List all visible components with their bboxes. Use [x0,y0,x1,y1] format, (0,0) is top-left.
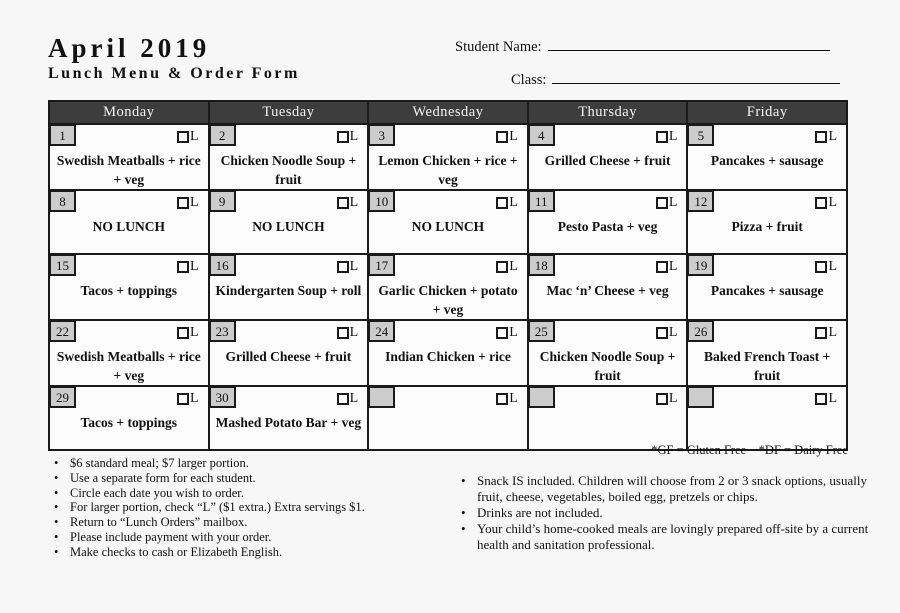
portion-checkbox[interactable] [496,261,508,273]
day-header-monday: Monday [49,101,209,124]
portion-check-row: L [496,259,518,275]
menu-text: NO LUNCH [50,217,208,236]
calendar-week-row: 15LTacos + toppings16LKindergarten Soup … [49,254,847,320]
calendar-cell: 16LKindergarten Soup + roll [209,254,369,320]
calendar-cell: 24LIndian Chicken + rice [368,320,528,386]
portion-checkbox-label: L [509,195,518,211]
portion-checkbox[interactable] [815,393,827,405]
portion-check-row: L [815,195,837,211]
menu-text: Garlic Chicken + potato + veg [369,281,527,319]
info-note-text: Drinks are not included. [477,505,875,521]
menu-text: Indian Chicken + rice [369,347,527,366]
portion-check-row: L [815,325,837,341]
calendar-cell: 30LMashed Potato Bar + veg [209,386,369,450]
calendar-body: 1LSwedish Meatballs + rice + veg2LChicke… [49,124,847,450]
calendar-cell: 22LSwedish Meatballs + rice + veg [49,320,209,386]
menu-text: Grilled Cheese + fruit [529,151,687,170]
calendar-cell: 15LTacos + toppings [49,254,209,320]
portion-checkbox[interactable] [337,197,349,209]
order-note-text: Make checks to cash or Elizabeth English… [70,545,448,560]
day-header-thursday: Thursday [528,101,688,124]
date-box[interactable] [368,386,395,408]
page-subtitle: Lunch Menu & Order Form [48,65,300,83]
portion-checkbox-label: L [350,391,359,407]
portion-checkbox-label: L [190,391,199,407]
class-input[interactable] [552,70,840,84]
calendar-cell: 12LPizza + fruit [687,190,847,254]
student-name-field: Student Name: [455,37,830,56]
menu-text: Pancakes + sausage [688,281,846,300]
order-note: •Please include payment with your order. [48,530,448,545]
portion-checkbox[interactable] [815,261,827,273]
portion-checkbox-label: L [190,259,199,275]
order-note-text: $6 standard meal; $7 larger portion. [70,456,448,471]
portion-checkbox-label: L [509,391,518,407]
menu-text: Kindergarten Soup + roll [210,281,368,300]
info-note-text: Your child’s home-cooked meals are lovin… [477,521,875,553]
bullet-icon: • [455,521,477,553]
calendar-cell: 3LLemon Chicken + rice + veg [368,124,528,190]
order-note-text: Return to “Lunch Orders” mailbox. [70,515,448,530]
student-name-label: Student Name: [455,39,542,55]
calendar-cell: 9LNO LUNCH [209,190,369,254]
portion-check-row: L [656,129,678,145]
portion-check-row: L [656,195,678,211]
menu-text: Baked French Toast + fruit [688,347,846,385]
order-note-text: Circle each date you wish to order. [70,486,448,501]
portion-check-row: L [337,259,359,275]
info-note-text: Snack IS included. Children will choose … [477,473,875,505]
calendar-cell: 26LBaked French Toast + fruit [687,320,847,386]
date-box[interactable]: 1 [49,124,76,146]
portion-check-row: L [496,325,518,341]
calendar-cell: 10LNO LUNCH [368,190,528,254]
bullet-icon: • [48,500,70,515]
portion-checkbox[interactable] [177,327,189,339]
portion-check-row: L [337,195,359,211]
portion-checkbox-label: L [669,259,678,275]
portion-checkbox-label: L [509,325,518,341]
menu-text: Tacos + toppings [50,281,208,300]
bullet-icon: • [48,471,70,486]
calendar-cell: 11LPesto Pasta + veg [528,190,688,254]
portion-check-row: L [177,391,199,407]
info-note: •Your child’s home-cooked meals are lovi… [455,521,875,553]
calendar-week-row: 29LTacos + toppings30LMashed Potato Bar … [49,386,847,450]
portion-check-row: L [177,129,199,145]
portion-check-row: L [815,259,837,275]
date-box[interactable]: 23 [209,320,236,342]
portion-check-row: L [337,391,359,407]
portion-check-row: L [177,259,199,275]
calendar-cell: L [528,386,688,450]
bullet-icon: • [48,515,70,530]
calendar-cell: 19LPancakes + sausage [687,254,847,320]
order-note: •$6 standard meal; $7 larger portion. [48,456,448,471]
order-note: •Return to “Lunch Orders” mailbox. [48,515,448,530]
date-box[interactable]: 5 [687,124,714,146]
calendar-head-row: MondayTuesdayWednesdayThursdayFriday [49,101,847,124]
gf-df-footnote: *GF = Gluten Free *DF = Dairy Free [651,443,848,458]
calendar-cell: 5LPancakes + sausage [687,124,847,190]
calendar-week-row: 22LSwedish Meatballs + rice + veg23LGril… [49,320,847,386]
date-box[interactable]: 8 [49,190,76,212]
bullet-icon: • [455,473,477,505]
portion-checkbox[interactable] [815,197,827,209]
portion-checkbox-label: L [190,325,199,341]
class-field: Class: [511,70,840,89]
date-box[interactable]: 22 [49,320,76,342]
portion-checkbox-label: L [350,129,359,145]
menu-text: Grilled Cheese + fruit [210,347,368,366]
menu-calendar-table: MondayTuesdayWednesdayThursdayFriday 1LS… [48,100,848,451]
day-header-friday: Friday [687,101,847,124]
date-box[interactable]: 17 [368,254,395,276]
portion-checkbox-label: L [190,129,199,145]
order-note: •Use a separate form for each student. [48,471,448,486]
order-note: •For larger portion, check “L” ($1 extra… [48,500,448,515]
bullet-icon: • [48,530,70,545]
calendar-cell: 17LGarlic Chicken + potato + veg [368,254,528,320]
bullet-icon: • [455,505,477,521]
date-box[interactable]: 19 [687,254,714,276]
menu-text: Swedish Meatballs + rice + veg [50,151,208,189]
portion-checkbox[interactable] [656,197,668,209]
menu-text: Pancakes + sausage [688,151,846,170]
portion-checkbox[interactable] [337,327,349,339]
portion-checkbox[interactable] [496,393,508,405]
portion-checkbox-label: L [669,195,678,211]
calendar-cell: L [368,386,528,450]
portion-checkbox[interactable] [815,327,827,339]
portion-check-row: L [656,325,678,341]
portion-checkbox[interactable] [496,197,508,209]
portion-checkbox[interactable] [656,261,668,273]
portion-checkbox-label: L [828,195,837,211]
portion-check-row: L [496,195,518,211]
portion-check-row: L [496,391,518,407]
portion-checkbox-label: L [828,391,837,407]
info-note: •Snack IS included. Children will choose… [455,473,875,505]
portion-checkbox-label: L [509,129,518,145]
date-box[interactable]: 29 [49,386,76,408]
portion-checkbox-label: L [190,195,199,211]
menu-text: Chicken Noodle Soup + fruit [210,151,368,189]
calendar-week-row: 8LNO LUNCH9LNO LUNCH10LNO LUNCH11LPesto … [49,190,847,254]
day-header-tuesday: Tuesday [209,101,369,124]
portion-checkbox-label: L [350,259,359,275]
order-note-text: Use a separate form for each student. [70,471,448,486]
bullet-icon: • [48,456,70,471]
order-note: •Make checks to cash or Elizabeth Englis… [48,545,448,560]
portion-checkbox[interactable] [496,131,508,143]
day-header-wednesday: Wednesday [368,101,528,124]
info-notes-list: •Snack IS included. Children will choose… [455,473,875,553]
date-box[interactable]: 26 [687,320,714,342]
ordering-notes-list: •$6 standard meal; $7 larger portion.•Us… [48,456,448,560]
menu-text: Chicken Noodle Soup + fruit [529,347,687,385]
portion-checkbox-label: L [828,129,837,145]
portion-check-row: L [337,129,359,145]
calendar-cell: 2LChicken Noodle Soup + fruit [209,124,369,190]
portion-checkbox-label: L [669,325,678,341]
menu-text: Mac ‘n’ Cheese + veg [529,281,687,300]
portion-checkbox[interactable] [177,131,189,143]
portion-check-row: L [815,129,837,145]
portion-check-row: L [177,195,199,211]
bullet-icon: • [48,486,70,501]
portion-checkbox-label: L [669,129,678,145]
date-box[interactable]: 12 [687,190,714,212]
order-note: •Circle each date you wish to order. [48,486,448,501]
portion-checkbox-label: L [828,325,837,341]
portion-checkbox-label: L [350,195,359,211]
calendar-cell: L [687,386,847,450]
date-box[interactable]: 10 [368,190,395,212]
menu-text: Swedish Meatballs + rice + veg [50,347,208,385]
portion-check-row: L [496,129,518,145]
calendar-cell: 8LNO LUNCH [49,190,209,254]
portion-checkbox[interactable] [656,393,668,405]
calendar-cell: 23LGrilled Cheese + fruit [209,320,369,386]
portion-check-row: L [177,325,199,341]
order-note-text: For larger portion, check “L” ($1 extra.… [70,500,448,515]
portion-checkbox[interactable] [177,197,189,209]
date-box[interactable]: 18 [528,254,555,276]
class-label: Class: [511,72,546,88]
portion-check-row: L [815,391,837,407]
bullet-icon: • [48,545,70,560]
menu-text: Pesto Pasta + veg [529,217,687,236]
menu-text: NO LUNCH [369,217,527,236]
portion-check-row: L [656,391,678,407]
portion-checkbox[interactable] [496,327,508,339]
portion-checkbox-label: L [828,259,837,275]
date-box[interactable]: 30 [209,386,236,408]
menu-text: Tacos + toppings [50,413,208,432]
date-box[interactable]: 25 [528,320,555,342]
portion-checkbox[interactable] [656,327,668,339]
portion-checkbox[interactable] [177,261,189,273]
portion-check-row: L [337,325,359,341]
date-box[interactable] [687,386,714,408]
portion-checkbox-label: L [669,391,678,407]
calendar-cell: 1LSwedish Meatballs + rice + veg [49,124,209,190]
portion-check-row: L [656,259,678,275]
order-note-text: Please include payment with your order. [70,530,448,545]
info-note: •Drinks are not included. [455,505,875,521]
student-name-input[interactable] [548,37,830,51]
menu-text: Mashed Potato Bar + veg [210,413,368,432]
date-box[interactable]: 2 [209,124,236,146]
portion-checkbox[interactable] [337,393,349,405]
date-box[interactable]: 24 [368,320,395,342]
portion-checkbox[interactable] [337,131,349,143]
portion-checkbox-label: L [350,325,359,341]
calendar-cell: 4LGrilled Cheese + fruit [528,124,688,190]
date-box[interactable] [528,386,555,408]
calendar-cell: 18LMac ‘n’ Cheese + veg [528,254,688,320]
date-box[interactable]: 3 [368,124,395,146]
calendar-cell: 29LTacos + toppings [49,386,209,450]
date-box[interactable]: 15 [49,254,76,276]
menu-text: Lemon Chicken + rice + veg [369,151,527,189]
calendar-week-row: 1LSwedish Meatballs + rice + veg2LChicke… [49,124,847,190]
portion-checkbox[interactable] [815,131,827,143]
date-box[interactable]: 9 [209,190,236,212]
calendar-cell: 25LChicken Noodle Soup + fruit [528,320,688,386]
date-box[interactable]: 16 [209,254,236,276]
menu-text: NO LUNCH [210,217,368,236]
portion-checkbox-label: L [509,259,518,275]
portion-checkbox[interactable] [656,131,668,143]
page-title: April 2019 [48,33,210,64]
menu-text: Pizza + fruit [688,217,846,236]
portion-checkbox[interactable] [337,261,349,273]
date-box[interactable]: 11 [528,190,555,212]
portion-checkbox[interactable] [177,393,189,405]
date-box[interactable]: 4 [528,124,555,146]
